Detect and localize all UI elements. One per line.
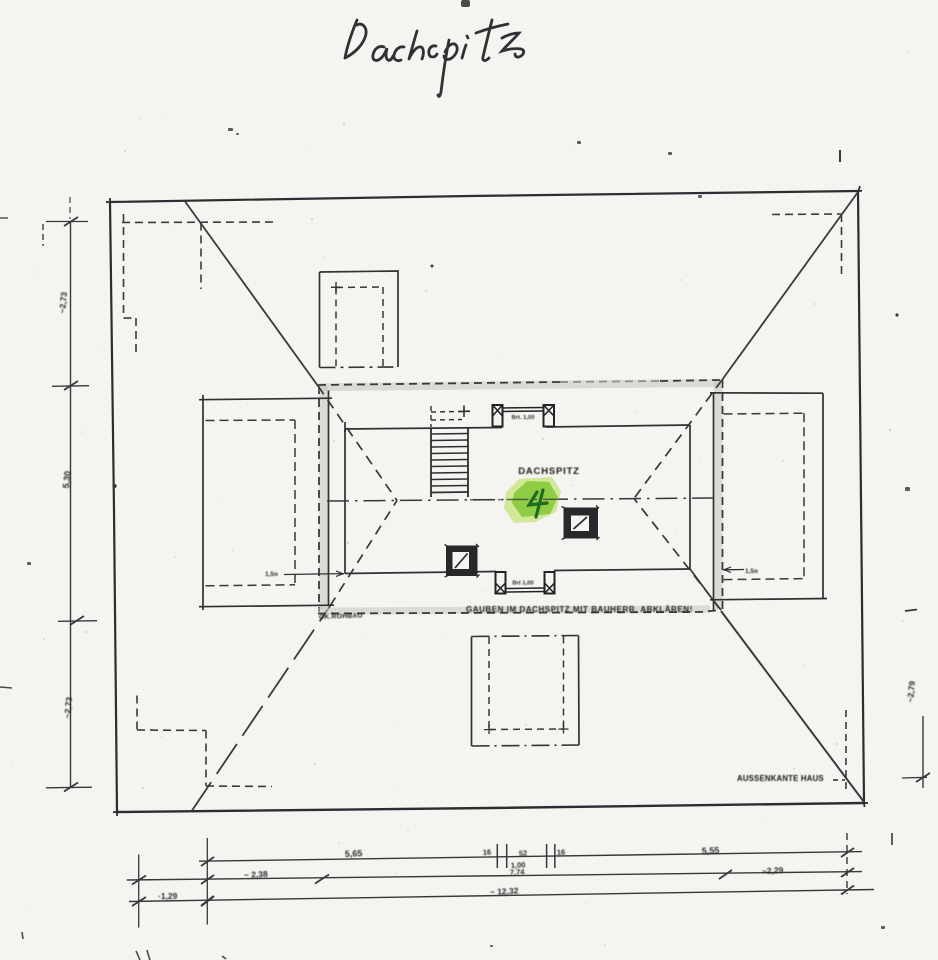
svg-text:16: 16 bbox=[557, 848, 566, 857]
svg-text:5,65: 5,65 bbox=[345, 848, 363, 859]
svg-text:DACHSPITZ: DACHSPITZ bbox=[518, 466, 580, 477]
svg-text:52: 52 bbox=[519, 849, 528, 858]
svg-text:16: 16 bbox=[483, 848, 492, 857]
svg-text:GAUBEN IM DACHSPITZ MIT BAUHER: GAUBEN IM DACHSPITZ MIT BAUHERR. ABKLÄRE… bbox=[466, 605, 693, 614]
svg-text:1,5o: 1,5o bbox=[265, 571, 278, 578]
svg-text:~2,29: ~2,29 bbox=[762, 865, 784, 876]
svg-text:AUSSENKANTE HAUS: AUSSENKANTE HAUS bbox=[737, 774, 824, 783]
svg-text:~ 12,32: ~ 12,32 bbox=[490, 886, 519, 897]
svg-text:7,74: 7,74 bbox=[510, 867, 526, 877]
svg-text:5,30: 5,30 bbox=[61, 470, 73, 488]
svg-text:·1,29: ·1,29 bbox=[158, 891, 178, 901]
svg-text:Brt 1,00: Brt 1,00 bbox=[512, 581, 533, 587]
svg-text:Brt. 1,00: Brt. 1,00 bbox=[512, 415, 535, 421]
svg-text:1,5o: 1,5o bbox=[745, 568, 758, 575]
svg-text:5,55: 5,55 bbox=[702, 845, 720, 856]
svg-text:~ 2,38: ~ 2,38 bbox=[244, 869, 269, 880]
